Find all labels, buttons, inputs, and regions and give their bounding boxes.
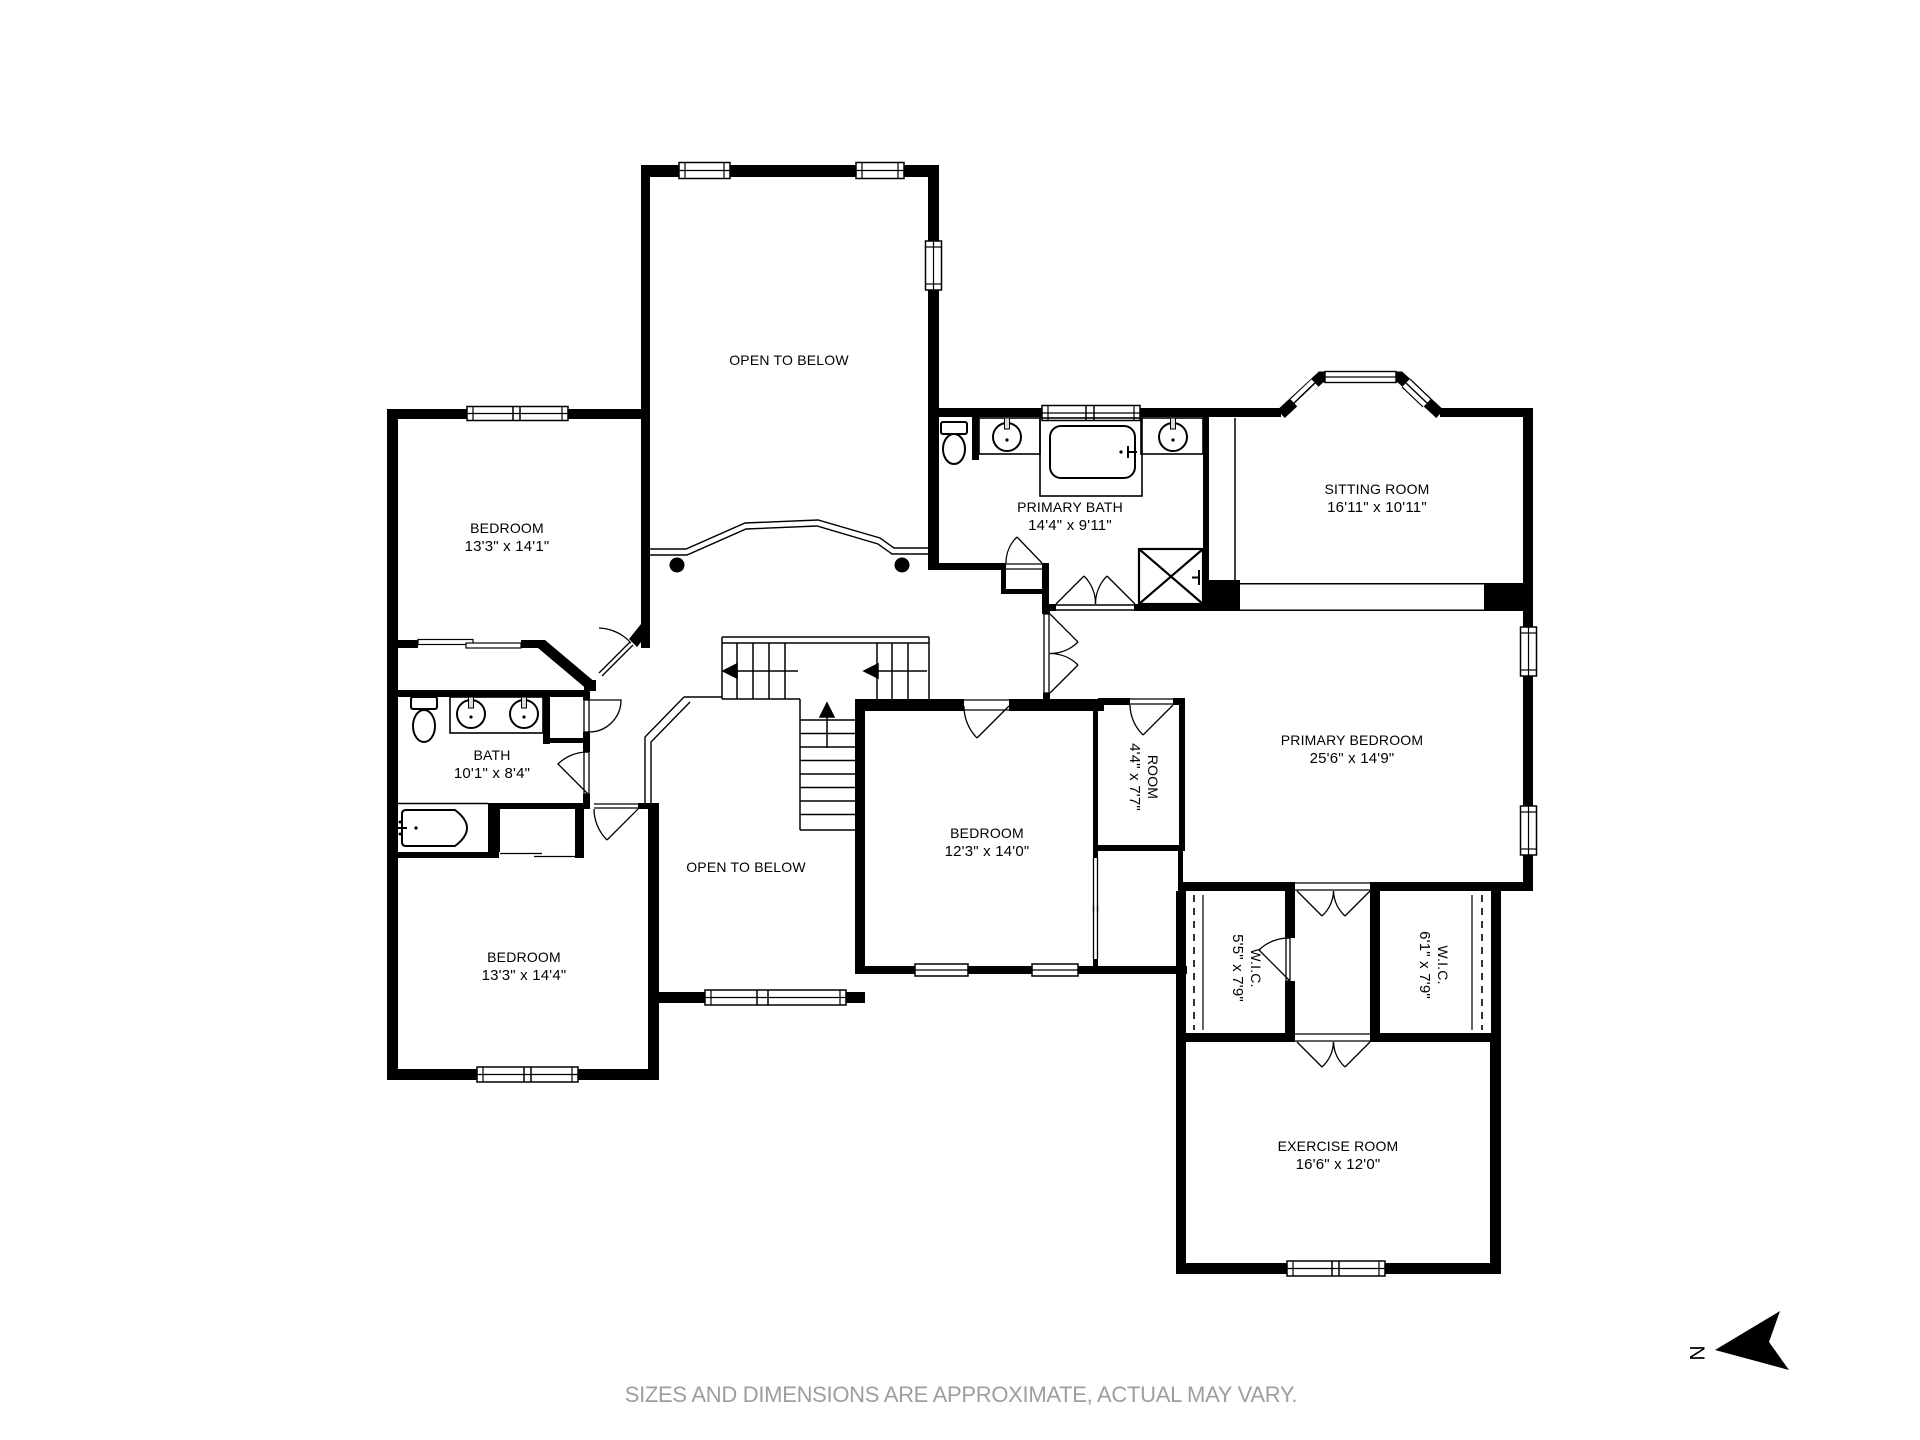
svg-text:BEDROOM: BEDROOM bbox=[950, 825, 1024, 841]
svg-text:25'6" x 14'9": 25'6" x 14'9" bbox=[1310, 750, 1395, 767]
svg-text:BATH: BATH bbox=[473, 747, 510, 763]
svg-text:4'4" x 7'7": 4'4" x 7'7" bbox=[1126, 743, 1143, 811]
svg-text:13'3" x 14'1": 13'3" x 14'1" bbox=[465, 538, 550, 555]
svg-text:SITTING ROOM: SITTING ROOM bbox=[1324, 481, 1429, 497]
svg-text:SIZES AND DIMENSIONS ARE APPRO: SIZES AND DIMENSIONS ARE APPROXIMATE, AC… bbox=[625, 1382, 1298, 1407]
svg-text:5'5" x 7'9": 5'5" x 7'9" bbox=[1229, 934, 1246, 1002]
svg-text:ROOM: ROOM bbox=[1145, 755, 1161, 799]
svg-text:14'4" x 9'11": 14'4" x 9'11" bbox=[1028, 517, 1112, 534]
svg-text:13'3" x 14'4": 13'3" x 14'4" bbox=[482, 967, 567, 984]
svg-text:6'1" x 7'9": 6'1" x 7'9" bbox=[1416, 931, 1433, 999]
svg-text:BEDROOM: BEDROOM bbox=[470, 520, 544, 536]
svg-text:16'11" x 10'11": 16'11" x 10'11" bbox=[1327, 499, 1427, 516]
svg-text:BEDROOM: BEDROOM bbox=[487, 949, 561, 965]
svg-text:10'1" x 8'4": 10'1" x 8'4" bbox=[454, 765, 530, 782]
svg-text:EXERCISE ROOM: EXERCISE ROOM bbox=[1278, 1138, 1399, 1154]
svg-text:W.I.C.: W.I.C. bbox=[1248, 948, 1264, 987]
svg-text:16'6" x 12'0": 16'6" x 12'0" bbox=[1296, 1156, 1381, 1173]
svg-text:PRIMARY BEDROOM: PRIMARY BEDROOM bbox=[1281, 732, 1424, 748]
svg-text:PRIMARY BATH: PRIMARY BATH bbox=[1017, 499, 1123, 515]
svg-text:12'3" x 14'0": 12'3" x 14'0" bbox=[945, 843, 1030, 860]
svg-text:OPEN TO BELOW: OPEN TO BELOW bbox=[686, 859, 806, 875]
svg-text:N: N bbox=[1685, 1345, 1708, 1360]
svg-text:W.I.C.: W.I.C. bbox=[1435, 945, 1451, 984]
svg-text:OPEN TO BELOW: OPEN TO BELOW bbox=[729, 352, 849, 368]
